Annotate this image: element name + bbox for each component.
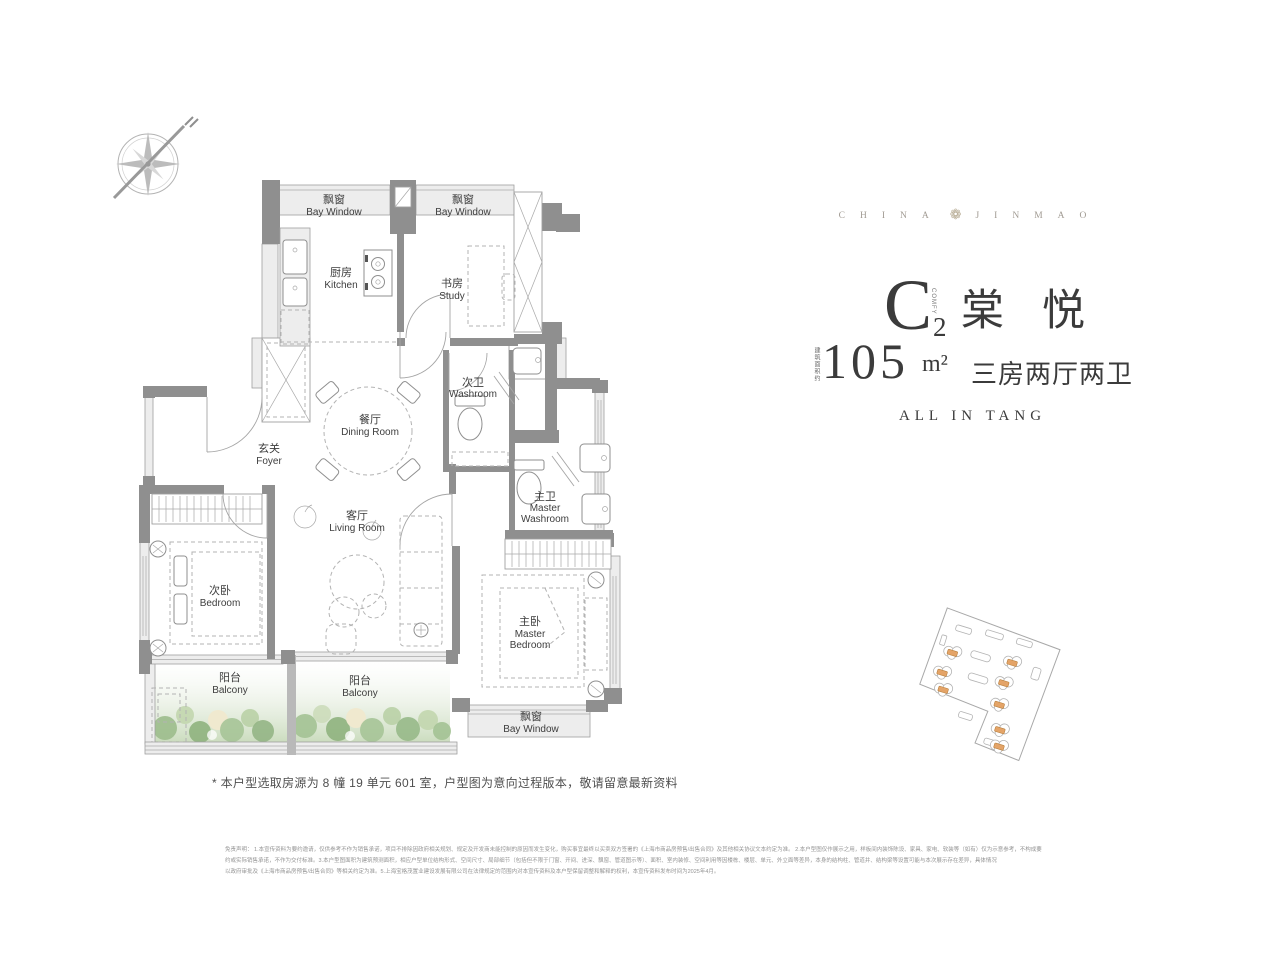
brand-left: CHINA (839, 211, 944, 221)
room-label-master-washroom-zh: 主卫 (534, 490, 556, 503)
area-unit: m² (922, 351, 948, 378)
room-label-living-zh: 客厅 (346, 508, 368, 522)
balcony-greenery (150, 662, 451, 744)
room-label-dining-en: Dining Room (341, 427, 399, 438)
disclaimer-line-1: 免责声明： 1.本宣传资料为要约邀请，仅供参考不作为销售承诺，项目不排除因政府相… (225, 845, 1065, 856)
unit-code-side-text: COMFY (930, 288, 936, 315)
disclaimer-line-2: 约或实际销售承诺，不作为交付标准。3.本户型图面积为建筑预测面积，相应户型单位结… (225, 856, 1065, 867)
area-prefix-vertical: 建筑面积约 (812, 347, 821, 382)
room-label-bay-master-en: Bay Window (503, 724, 559, 735)
disclaimer: 免责声明： 1.本宣传资料为要约邀请，仅供参考不作为销售承诺，项目不排除因政府相… (225, 845, 1065, 878)
compass-north-mark (185, 117, 198, 127)
brand-logo: CHINA ❁ JINMAO (800, 207, 1140, 224)
room-label-balcony1-zh: 阳台 (219, 670, 241, 684)
room-label-bay-master-zh: 飘窗 (520, 709, 542, 723)
slogan: ALL IN TANG (890, 408, 1055, 425)
room-label-bay1-en: Bay Window (306, 207, 362, 218)
room-label-bedroom-zh: 次卧 (209, 583, 231, 597)
unit-name: 棠悦 (961, 289, 1123, 335)
room-label-master-washroom-en2: Washroom (521, 514, 569, 525)
unit-layout-text: 三房两厅两卫 (971, 354, 1133, 391)
room-label-master-bedroom-en1: Master (515, 629, 546, 640)
floorplan-drawing: 飘窗 Bay Window 飘窗 Bay Window 厨房 Kitchen 书… (135, 175, 630, 775)
disclaimer-line-3: 以政府审批及《上海市商品房预售/出售合同》等相关约定为准。5.上海宝格茂置业建设… (225, 867, 1065, 878)
site-plan (898, 598, 1078, 763)
area-value: 105 (822, 336, 909, 386)
room-label-kitchen-en: Kitchen (324, 280, 357, 291)
room-label-balcony1-en: Balcony (212, 685, 248, 696)
room-label-balcony2-en: Balcony (342, 688, 378, 699)
room-label-bay2-en: Bay Window (435, 207, 491, 218)
room-label-bay2-zh: 飘窗 (452, 192, 474, 206)
room-label-dining-zh: 餐厅 (359, 412, 381, 426)
room-label-bay1-zh: 飘窗 (323, 192, 345, 206)
floorplan-page: 飘窗 Bay Window 飘窗 Bay Window 厨房 Kitchen 书… (0, 0, 1280, 961)
brand-right: JINMAO (975, 211, 1101, 221)
room-label-master-bedroom-zh: 主卧 (519, 615, 541, 628)
brand-flower-icon: ❁ (950, 207, 962, 224)
room-label-bedroom-en: Bedroom (200, 598, 241, 609)
room-label-washroom-zh: 次卫 (462, 375, 484, 389)
unit-note: * 本户型选取房源为 8 幢 19 单元 601 室，户型图为意向过程版本，敬请… (212, 774, 678, 791)
room-label-washroom-en: Washroom (449, 389, 497, 400)
room-label-study-en: Study (439, 291, 465, 302)
study-furniture (468, 246, 515, 326)
unit-code-letter: C (884, 272, 932, 338)
room-label-master-washroom-en1: Master (530, 503, 561, 514)
room-label-study-zh: 书房 (441, 277, 463, 290)
room-label-foyer-en: Foyer (256, 456, 282, 467)
room-label-kitchen-zh: 厨房 (330, 266, 352, 279)
room-label-foyer-zh: 玄关 (258, 441, 280, 455)
room-label-living-en: Living Room (329, 523, 385, 534)
room-label-balcony2-zh: 阳台 (349, 673, 371, 687)
unit-code-subscript: 2 (933, 312, 947, 343)
room-label-master-bedroom-en2: Bedroom (510, 640, 551, 651)
